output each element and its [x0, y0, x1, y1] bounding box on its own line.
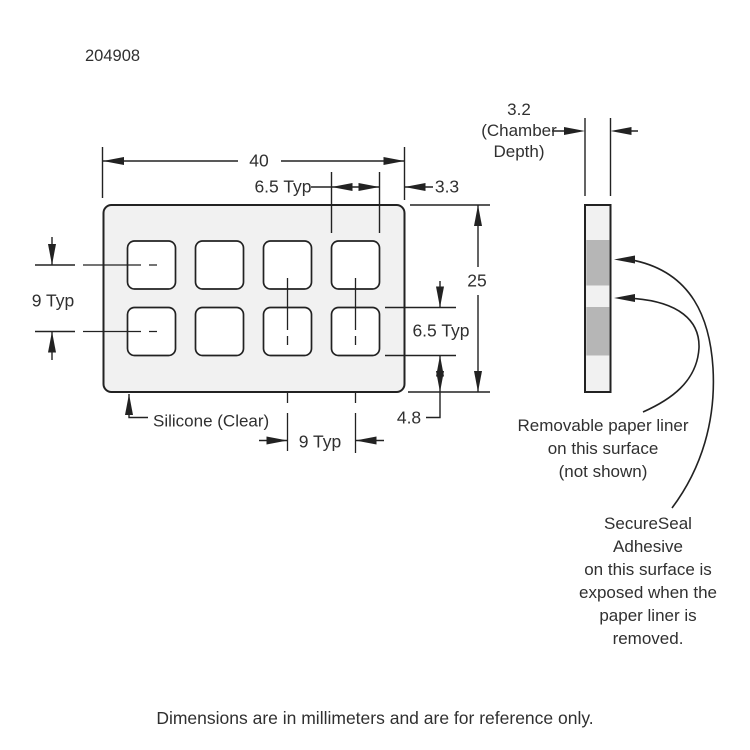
arrowhead	[356, 437, 377, 445]
chamber-height-dim-label: 6.5 Typ	[412, 321, 469, 342]
chamber-band-bottom	[586, 307, 609, 356]
arrowhead	[359, 183, 380, 191]
liner-leader-curve	[634, 299, 699, 413]
arrowhead	[125, 394, 133, 415]
column-pitch-dim-label: 9 Typ	[299, 432, 342, 453]
overall-width-dim-label: 40	[249, 151, 268, 172]
arrowhead	[267, 437, 288, 445]
arrowhead	[103, 157, 124, 165]
chamber-band-top	[586, 240, 609, 286]
arrowhead	[474, 205, 482, 226]
adhesive-note-line: on this surface is	[579, 558, 717, 581]
arrowhead	[48, 332, 56, 353]
arrowhead	[405, 183, 426, 191]
arrowhead	[614, 294, 635, 302]
liner-note-line: Removable paper liner	[517, 414, 688, 437]
bottom-margin-leader	[426, 392, 440, 418]
arrowhead	[474, 371, 482, 392]
arrowhead	[48, 244, 56, 265]
gasket-body-outline	[104, 205, 405, 392]
adhesive-note: SecureSeal Adhesive on this surface is e…	[579, 512, 717, 650]
overall-height-dim-label: 25	[467, 271, 486, 292]
adhesive-note-line: Adhesive	[579, 535, 717, 558]
liner-note-line: on this surface	[517, 437, 688, 460]
liner-note-line: (not shown)	[517, 460, 688, 483]
depth-extension-lines	[585, 118, 611, 196]
adhesive-note-line: SecureSeal	[579, 512, 717, 535]
chamber-depth-text-line3: Depth)	[481, 141, 557, 162]
chamber-depth-text-line2: (Chamber	[481, 120, 557, 141]
arrowhead	[436, 287, 444, 308]
bottom-margin-dim-label: 4.8	[397, 408, 421, 429]
adhesive-note-line: removed.	[579, 627, 717, 650]
arrowhead	[384, 157, 405, 165]
chamber-cell	[196, 241, 244, 289]
chamber-depth-value: 3.2	[481, 99, 557, 120]
chamber-width-dim-label: 6.5 Typ	[254, 177, 311, 198]
right-margin-dim-label: 3.3	[435, 177, 459, 198]
arrowhead	[611, 127, 632, 135]
liner-note: Removable paper liner on this surface (n…	[517, 414, 688, 483]
technical-drawing-page: 204908 40 6.5 Typ 3.3 25 6.5 Typ 4.8 9 T…	[0, 0, 750, 750]
adhesive-note-line: paper liner is	[579, 604, 717, 627]
arrowhead	[332, 183, 353, 191]
chamber-depth-label: 3.2 (Chamber Depth)	[481, 99, 557, 162]
material-label: Silicone (Clear)	[153, 411, 269, 432]
arrowhead	[436, 371, 444, 392]
dimensions-disclaimer: Dimensions are in millimeters and are fo…	[0, 708, 750, 729]
part-number: 204908	[85, 46, 140, 67]
adhesive-note-line: exposed when the	[579, 581, 717, 604]
row-pitch-dim-label: 9 Typ	[32, 291, 75, 312]
arrowhead	[564, 127, 585, 135]
chamber-cell	[196, 308, 244, 356]
side-profile-outline	[585, 205, 611, 392]
arrowhead	[614, 256, 635, 264]
